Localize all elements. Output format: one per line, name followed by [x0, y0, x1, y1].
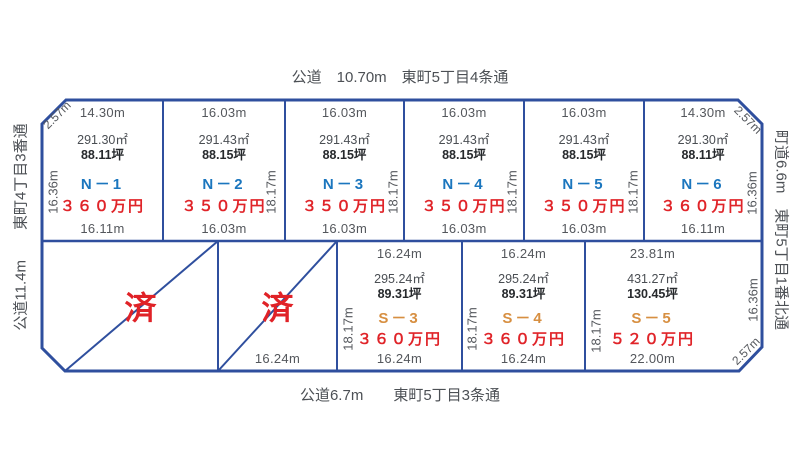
land-subdivision-map: 公道 10.70m 東町5丁目4条通 公道6.7m 東町5丁目3条通 公道11.… — [0, 0, 800, 450]
plot-n1-area-m2: 291.30㎡ — [42, 133, 163, 148]
plot-s3-id: S－3 — [337, 307, 462, 328]
plot-n6-side-dim: 16.36m — [745, 171, 760, 214]
plot-s5-area-tsubo: 130.45坪 — [585, 287, 720, 302]
road-label-left: 公道11.4m 東町4丁目3番通 — [10, 123, 31, 330]
plot-n2-area-tsubo: 88.15坪 — [163, 148, 285, 163]
plot-n5-bottom-dim: 16.03m — [524, 221, 644, 236]
plot-n2-area-m2: 291.43㎡ — [163, 133, 285, 148]
plot-n2-area-block: 291.43㎡ 88.15坪 — [163, 133, 285, 164]
plot-n2-bottom-dim: 16.03m — [163, 221, 285, 236]
plot-n1-top-dim: 14.30m — [42, 105, 163, 120]
plot-n5-area-tsubo: 88.15坪 — [524, 148, 644, 163]
plot-n3-bottom-dim: 16.03m — [285, 221, 404, 236]
plot-n4-top-dim: 16.03m — [404, 105, 524, 120]
plot-n3-top-dim: 16.03m — [285, 105, 404, 120]
plot-s3: 16.24m 295.24㎡ 89.31坪 S－3 ３６０万円 16.24m — [337, 241, 462, 371]
plot-n2-side-dim: 18.17m — [264, 170, 279, 213]
plot-s3-area-tsubo: 89.31坪 — [337, 287, 462, 302]
plot-n6-area-m2: 291.30㎡ — [644, 133, 762, 148]
plot-s4-area-tsubo: 89.31坪 — [462, 287, 585, 302]
plot-n6-area-block: 291.30㎡ 88.11坪 — [644, 133, 762, 164]
plot-s4: 16.24m 295.24㎡ 89.31坪 S－4 ３６０万円 16.24m — [462, 241, 585, 371]
plot-n1-area-tsubo: 88.11坪 — [42, 148, 163, 163]
plot-n5-area-block: 291.43㎡ 88.15坪 — [524, 133, 644, 164]
plot-n4-area-tsubo: 88.15坪 — [404, 148, 524, 163]
plot-n4-side-dim: 18.17m — [505, 170, 520, 213]
plot-n5-top-dim: 16.03m — [524, 105, 644, 120]
plot-n6-top-dim: 14.30m — [644, 105, 762, 120]
plot-n1-bottom-dim: 16.11m — [42, 221, 163, 236]
sold-stamp: 済 — [261, 283, 293, 329]
plot-sold-2-bottom-dim: 16.24m — [218, 351, 337, 366]
plot-s4-bottom-dim: 16.24m — [462, 351, 585, 366]
plot-n3-area-m2: 291.43㎡ — [285, 133, 404, 148]
plot-s3-area-block: 295.24㎡ 89.31坪 — [337, 272, 462, 303]
plot-s5-right-dim: 16.36m — [746, 278, 761, 321]
plot-s4-area-m2: 295.24㎡ — [462, 272, 585, 287]
plot-s5: 23.81m 431.27㎡ 130.45坪 S－5 ５２０万円 22.00m — [585, 241, 762, 371]
plot-s3-top-dim: 16.24m — [337, 246, 462, 261]
plot-s5-bottom-dim: 22.00m — [585, 351, 720, 366]
plot-n5-side-dim: 18.17m — [626, 170, 641, 213]
plot-s5-area-m2: 431.27㎡ — [585, 272, 720, 287]
plot-s4-top-dim: 16.24m — [462, 246, 585, 261]
plot-s4-id: S－4 — [462, 307, 585, 328]
plot-n2-top-dim: 16.03m — [163, 105, 285, 120]
plot-n6-area-tsubo: 88.11坪 — [644, 148, 762, 163]
plot-n4-area-m2: 291.43㎡ — [404, 133, 524, 148]
plot-sold-1: 済 — [42, 241, 218, 371]
plot-n1-area-block: 291.30㎡ 88.11坪 — [42, 133, 163, 164]
plot-s3-price: ３６０万円 — [337, 328, 462, 349]
sold-stamp: 済 — [125, 283, 157, 329]
plot-s5-top-dim: 23.81m — [585, 246, 720, 261]
plot-s3-area-m2: 295.24㎡ — [337, 272, 462, 287]
plot-s3-side-dim: 18.17m — [341, 307, 356, 350]
plot-s5-area-block: 431.27㎡ 130.45坪 — [585, 272, 720, 303]
plot-s4-area-block: 295.24㎡ 89.31坪 — [462, 272, 585, 303]
plot-s5-side-dim: 18.17m — [589, 309, 604, 352]
plot-n4-area-block: 291.43㎡ 88.15坪 — [404, 133, 524, 164]
plot-n3-area-block: 291.43㎡ 88.15坪 — [285, 133, 404, 164]
plot-n3-area-tsubo: 88.15坪 — [285, 148, 404, 163]
plot-s4-side-dim: 18.17m — [465, 307, 480, 350]
plot-s5-id: S－5 — [585, 307, 720, 328]
road-label-top: 公道 10.70m 東町5丁目4条通 — [0, 66, 800, 87]
plot-s5-price: ５２０万円 — [585, 328, 720, 349]
road-label-right: 町道6.6m 東町5丁目1番北通 — [772, 130, 793, 330]
road-label-bottom: 公道6.7m 東町5丁目3条通 — [0, 384, 800, 405]
plot-s3-bottom-dim: 16.24m — [337, 351, 462, 366]
plot-n6-bottom-dim: 16.11m — [644, 221, 762, 236]
plot-n5-area-m2: 291.43㎡ — [524, 133, 644, 148]
plot-s4-price: ３６０万円 — [462, 328, 585, 349]
plot-sold-2: 済 16.24m — [218, 241, 337, 371]
plot-n3-side-dim: 18.17m — [386, 170, 401, 213]
plot-n1-side-dim: 16.36m — [46, 170, 61, 213]
plot-n4-bottom-dim: 16.03m — [404, 221, 524, 236]
